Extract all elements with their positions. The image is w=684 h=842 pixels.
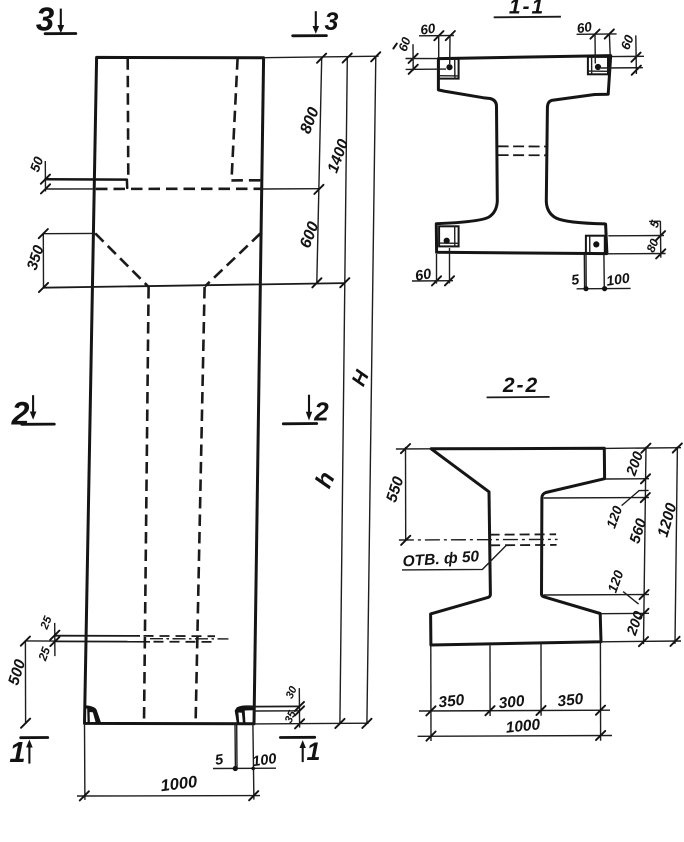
svg-text:300: 300 xyxy=(498,693,526,713)
svg-text:1: 1 xyxy=(9,737,25,769)
svg-text:2: 2 xyxy=(313,397,329,427)
svg-text:100: 100 xyxy=(251,751,277,770)
svg-text:2-2: 2-2 xyxy=(502,374,539,397)
svg-text:60: 60 xyxy=(576,19,594,36)
svg-text:60: 60 xyxy=(414,266,433,285)
svg-text:3: 3 xyxy=(36,1,54,38)
svg-text:3: 3 xyxy=(325,8,339,36)
svg-text:1000: 1000 xyxy=(505,716,541,737)
svg-text:60: 60 xyxy=(419,20,437,37)
svg-text:350: 350 xyxy=(438,692,466,712)
svg-text:2: 2 xyxy=(11,396,30,432)
svg-text:1-1: 1-1 xyxy=(509,0,545,19)
svg-text:100: 100 xyxy=(605,270,631,289)
svg-text:350: 350 xyxy=(557,691,585,711)
svg-text:1: 1 xyxy=(307,738,321,766)
